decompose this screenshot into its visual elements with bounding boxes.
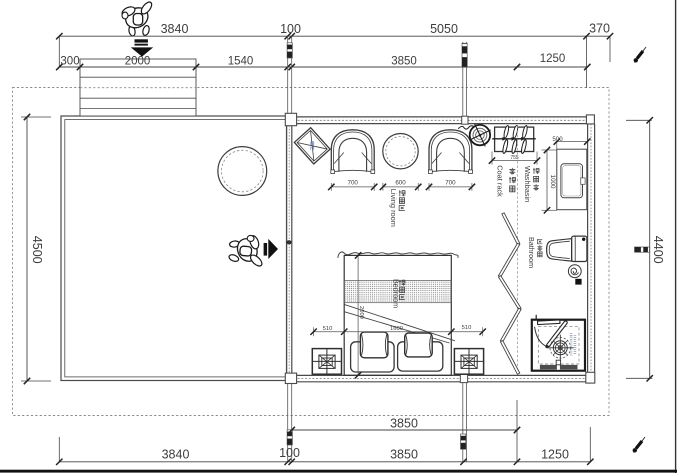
svg-text:5050: 5050 (430, 22, 458, 36)
svg-text:1250: 1250 (540, 53, 566, 65)
svg-text:510: 510 (323, 326, 333, 332)
svg-text:2000: 2000 (358, 306, 364, 319)
svg-text:3840: 3840 (162, 448, 190, 462)
svg-text:2000: 2000 (125, 56, 151, 68)
svg-text:500: 500 (552, 136, 563, 143)
svg-text:Coat rack: Coat rack (496, 165, 505, 197)
svg-text:100: 100 (279, 446, 300, 460)
svg-text:510: 510 (462, 325, 472, 331)
svg-text:3850: 3850 (391, 56, 417, 68)
svg-text:3850: 3850 (390, 416, 418, 430)
svg-text:700: 700 (445, 179, 456, 186)
svg-text:1600: 1600 (390, 326, 403, 332)
svg-text:1000: 1000 (549, 175, 556, 189)
svg-text:100: 100 (280, 22, 301, 36)
svg-text:3840: 3840 (161, 22, 189, 36)
svg-text:4500: 4500 (30, 236, 44, 264)
svg-text:1250: 1250 (541, 448, 569, 462)
svg-text:370: 370 (589, 22, 610, 36)
svg-text:Washbasin: Washbasin (523, 166, 532, 202)
svg-text:600: 600 (395, 179, 406, 186)
svg-text:300: 300 (60, 56, 79, 68)
svg-text:3850: 3850 (390, 448, 418, 462)
svg-text:700: 700 (348, 179, 359, 186)
svg-text:Bedroom: Bedroom (391, 279, 400, 308)
svg-text:1540: 1540 (228, 56, 254, 68)
svg-text:Living room: Living room (389, 189, 398, 227)
svg-text:4400: 4400 (651, 236, 665, 264)
svg-text:Bathroom: Bathroom (527, 237, 536, 268)
